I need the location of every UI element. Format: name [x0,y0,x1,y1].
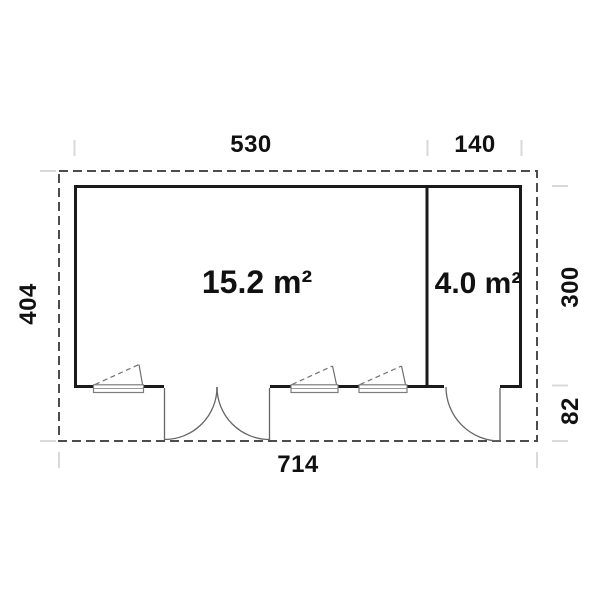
window-1 [94,365,144,393]
double-door [165,387,270,440]
dimension-ticks [40,140,568,468]
dim-width-main: 530 [230,131,272,158]
single-door [446,387,500,441]
dim-width-side: 140 [454,131,496,158]
dim-width-total: 714 [277,451,319,478]
side-room-area-label: 4.0 m² [435,267,522,300]
dim-depth-side: 300 [557,266,584,308]
window-3 [359,366,407,393]
main-room-area-label: 15.2 m² [202,264,312,300]
dim-depth-total: 404 [15,283,42,325]
dim-porch-depth: 82 [557,397,584,425]
floor-plan-drawing: 530 140 404 300 82 714 15.2 m² 4.0 m² [0,0,600,600]
roof-overhang-outline [59,171,537,441]
window-2 [291,366,338,393]
floor-plan-canvas: 530 140 404 300 82 714 15.2 m² 4.0 m² [0,0,600,600]
